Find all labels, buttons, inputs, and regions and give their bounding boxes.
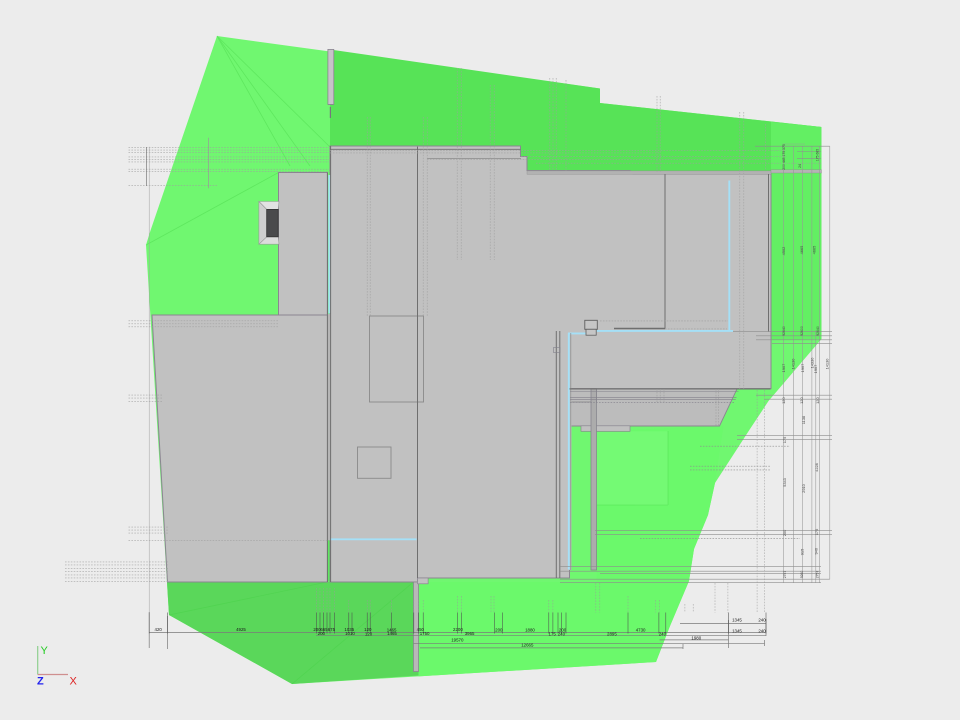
svg-text:92640: 92640	[782, 326, 786, 336]
svg-text:420: 420	[155, 627, 163, 632]
svg-text:1138: 1138	[801, 416, 806, 424]
svg-text:4665: 4665	[812, 246, 817, 255]
svg-text:240: 240	[558, 632, 566, 637]
svg-text:12665: 12665	[521, 643, 534, 648]
svg-text:92640: 92640	[816, 326, 820, 336]
svg-text:675: 675	[328, 627, 336, 632]
svg-text:14130: 14130	[791, 358, 796, 370]
svg-text:915: 915	[799, 549, 804, 556]
svg-text:Z: Z	[37, 676, 44, 688]
svg-text:240: 240	[758, 629, 766, 634]
svg-text:940: 940	[814, 547, 819, 554]
svg-text:200 445 175 375: 200 445 175 375	[782, 144, 786, 170]
svg-text:4730: 4730	[636, 627, 646, 632]
svg-text:120: 120	[799, 397, 804, 404]
svg-text:4925: 4925	[236, 627, 246, 632]
svg-text:175: 175	[782, 437, 787, 444]
svg-text:1345: 1345	[732, 629, 742, 634]
svg-text:2200: 2200	[453, 627, 463, 632]
svg-text:200: 200	[318, 631, 326, 636]
svg-text:9260: 9260	[800, 571, 804, 579]
svg-text:5343: 5343	[782, 478, 787, 487]
svg-text:200: 200	[495, 627, 503, 632]
svg-text:2757: 2757	[783, 571, 787, 579]
svg-text:2895: 2895	[607, 632, 617, 637]
svg-text:1980: 1980	[691, 635, 701, 640]
svg-text:92600: 92600	[800, 326, 804, 336]
svg-text:1465: 1465	[387, 631, 397, 636]
svg-text:19570: 19570	[451, 638, 464, 643]
svg-text:120: 120	[365, 632, 373, 637]
svg-text:14130: 14130	[825, 358, 830, 370]
svg-text:240: 240	[659, 632, 667, 637]
svg-text:2757: 2757	[815, 571, 819, 579]
svg-text:3965: 3965	[465, 631, 475, 636]
svg-text:4228: 4228	[814, 463, 819, 472]
svg-text:1907: 1907	[800, 364, 805, 373]
svg-text:120: 120	[815, 397, 820, 404]
svg-text:Y: Y	[41, 645, 49, 657]
svg-text:1907: 1907	[781, 364, 786, 373]
svg-text:X: X	[70, 676, 78, 688]
svg-text:1345: 1345	[732, 618, 742, 623]
svg-text:1880: 1880	[525, 627, 535, 632]
svg-text:175: 175	[814, 529, 819, 536]
svg-text:4502: 4502	[781, 247, 786, 256]
svg-text:1907: 1907	[813, 365, 818, 374]
svg-text:4665: 4665	[799, 246, 804, 255]
svg-text:24: 24	[798, 164, 802, 168]
svg-text:2910: 2910	[801, 483, 806, 492]
svg-text:1010: 1010	[345, 631, 355, 636]
svg-text:200: 200	[782, 529, 787, 536]
svg-text:240: 240	[758, 618, 766, 623]
svg-text:175: 175	[549, 632, 557, 637]
svg-text:1750: 1750	[420, 631, 430, 636]
svg-text:120: 120	[781, 397, 786, 404]
svg-text:175 685: 175 685	[816, 149, 820, 161]
